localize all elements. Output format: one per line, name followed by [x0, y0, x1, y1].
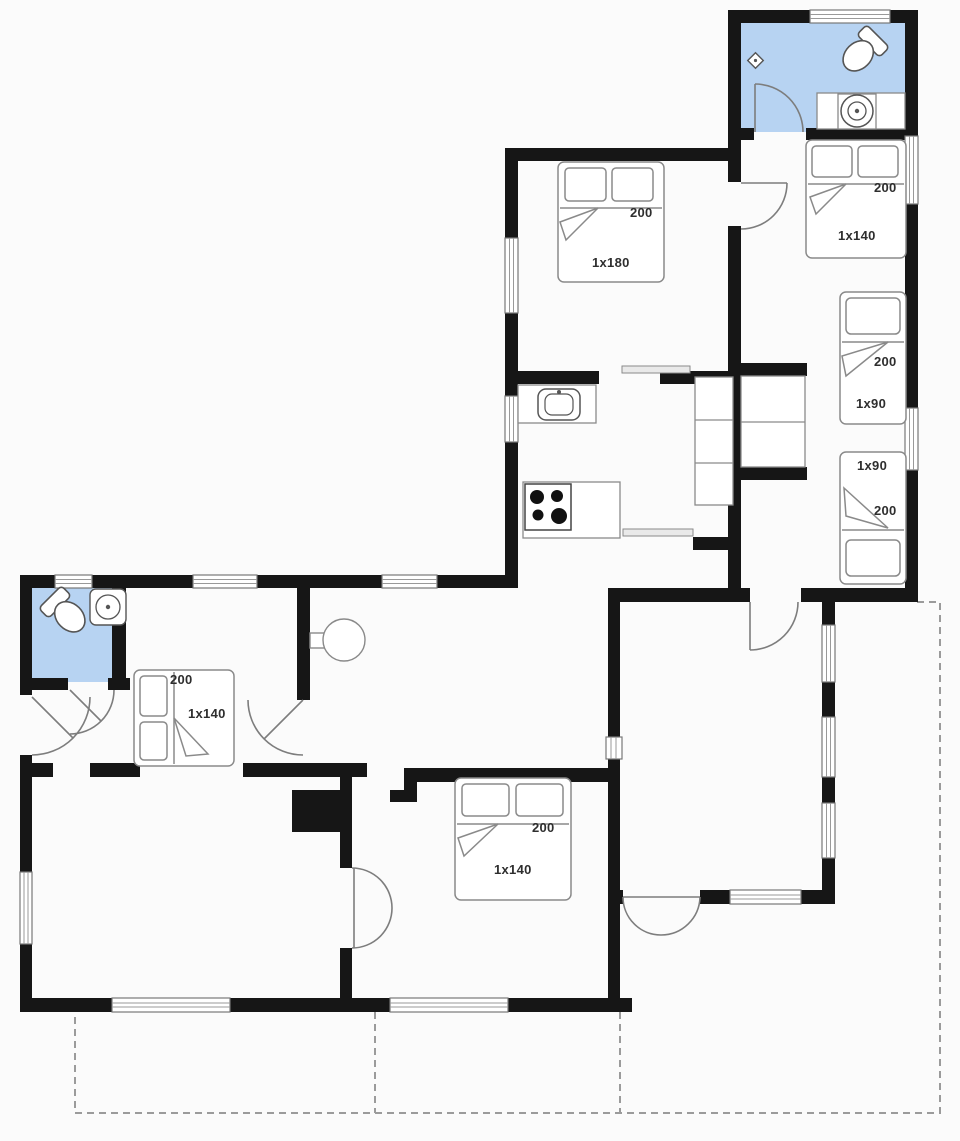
window: [193, 575, 257, 588]
wardrobe-icon: [695, 377, 733, 505]
french-doors: [352, 868, 392, 948]
door-swing: [32, 697, 90, 755]
sliding-doors: [622, 366, 693, 536]
window: [55, 575, 92, 588]
floor-plan: 200 1x180 200 1x140 200 1x90 1x90 200 20…: [0, 0, 960, 1141]
sliding-door: [623, 529, 693, 536]
bed-size-label: 1x90: [856, 396, 886, 411]
bed-size-label: 1x140: [188, 706, 226, 721]
bed-length-label: 200: [532, 820, 555, 835]
sliding-door: [622, 366, 690, 373]
bed-size-label: 1x180: [592, 255, 630, 270]
doors: [32, 84, 803, 948]
window: [505, 396, 518, 442]
window: [505, 238, 518, 313]
window: [390, 998, 508, 1012]
bed-length-label: 200: [630, 205, 653, 220]
door-swing: [248, 700, 303, 755]
door-swing: [70, 690, 114, 734]
window: [822, 803, 835, 858]
bed-length-label: 200: [874, 354, 897, 369]
kitchen-sink-icon: [518, 385, 596, 423]
round-basin-icon: [817, 93, 905, 129]
window: [822, 717, 835, 777]
wardrobe-icon: [741, 376, 805, 467]
round-table-icon: [310, 619, 365, 661]
bed-size-label: 1x140: [838, 228, 876, 243]
window: [905, 408, 918, 470]
floor-plan-drawing: [0, 0, 960, 1141]
window: [730, 890, 801, 904]
bed-length-label: 200: [874, 503, 897, 518]
bed-south: [455, 778, 571, 900]
window: [905, 136, 918, 204]
bed-size-label: 1x140: [494, 862, 532, 877]
french-doors: [623, 897, 700, 935]
window: [822, 625, 835, 682]
round-basin-icon: [90, 589, 126, 625]
wardrobes: [695, 376, 805, 505]
window: [606, 737, 622, 759]
window: [810, 10, 890, 23]
door-swing: [741, 183, 787, 229]
stove-icon: [523, 482, 620, 538]
window: [112, 998, 230, 1012]
window: [20, 872, 32, 944]
bed-length-label: 200: [874, 180, 897, 195]
window: [382, 575, 437, 588]
door-swing: [750, 602, 798, 650]
bed-length-label: 200: [170, 672, 193, 687]
bed-size-label: 1x90: [857, 458, 887, 473]
